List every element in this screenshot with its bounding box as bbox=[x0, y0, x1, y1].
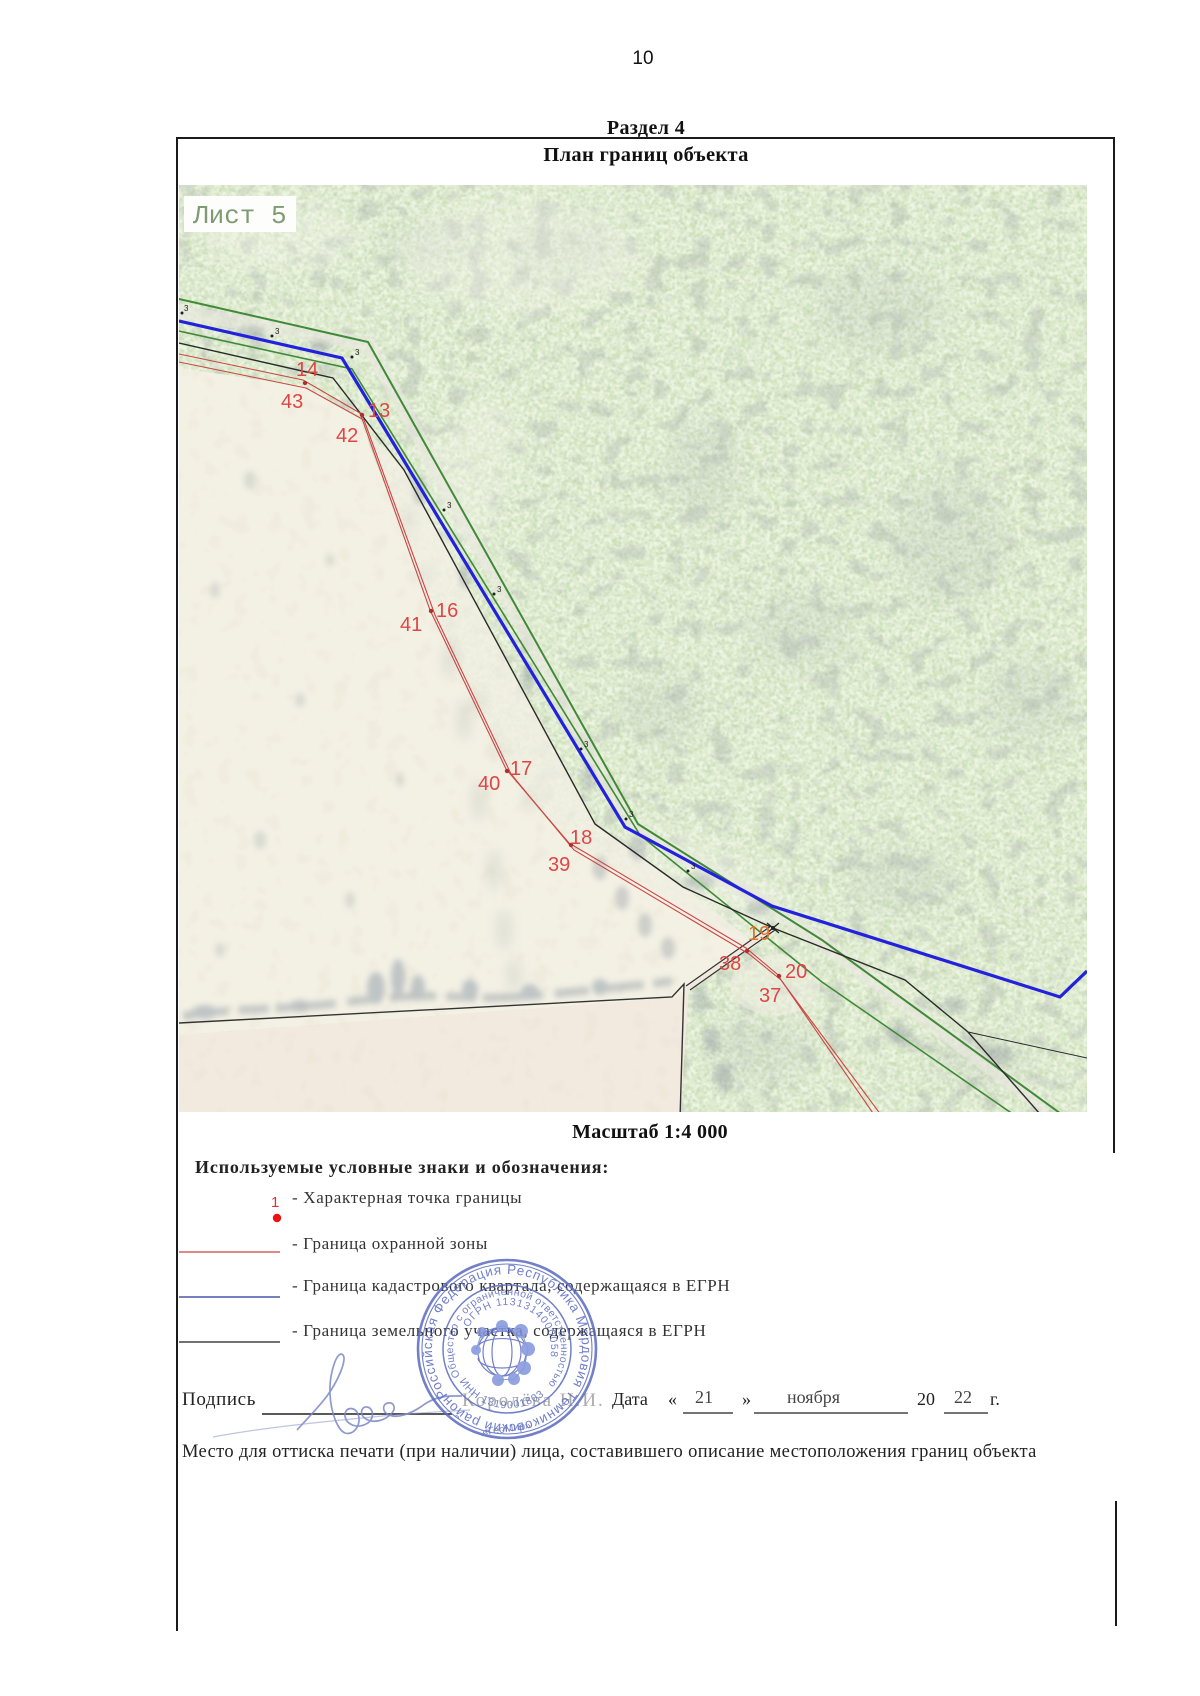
svg-text:ноября: ноября bbox=[787, 1387, 840, 1407]
svg-text:17: 17 bbox=[510, 758, 532, 780]
svg-text:Используемые условные знаки и: Используемые условные знаки и обозначени… bbox=[195, 1157, 609, 1177]
svg-text:20: 20 bbox=[917, 1389, 935, 1409]
svg-text:г.: г. bbox=[990, 1389, 1000, 1409]
svg-text:1: 1 bbox=[271, 1194, 279, 1211]
svg-text:3: 3 bbox=[497, 585, 502, 594]
svg-text:Место для оттиска печати (при: Место для оттиска печати (при наличии) л… bbox=[182, 1442, 1037, 1462]
svg-text:3: 3 bbox=[629, 810, 634, 819]
svg-text:20: 20 bbox=[785, 961, 807, 983]
svg-text:3: 3 bbox=[584, 740, 589, 749]
svg-text:Масштаб 1:4 000: Масштаб 1:4 000 bbox=[572, 1121, 728, 1143]
svg-text:43: 43 bbox=[281, 391, 303, 413]
svg-text:21: 21 bbox=[695, 1387, 713, 1407]
svg-text:- Граница охранной зоны: - Граница охранной зоны bbox=[292, 1234, 488, 1253]
svg-text:16: 16 bbox=[436, 600, 458, 622]
svg-text:«: « bbox=[668, 1389, 677, 1409]
svg-text:Дата: Дата bbox=[612, 1389, 648, 1409]
svg-text:10: 10 bbox=[632, 48, 653, 69]
svg-text:40: 40 bbox=[478, 773, 500, 795]
svg-text:- Характерная точка границы: - Характерная точка границы bbox=[292, 1188, 522, 1207]
svg-text:22: 22 bbox=[954, 1387, 972, 1407]
svg-text:18: 18 bbox=[570, 827, 592, 849]
svg-text:3: 3 bbox=[184, 304, 189, 313]
svg-text:37: 37 bbox=[759, 985, 781, 1007]
svg-text:42: 42 bbox=[336, 425, 358, 447]
svg-text:3: 3 bbox=[275, 327, 280, 336]
svg-text:План границ объекта: План границ объекта bbox=[543, 144, 748, 166]
svg-text:39: 39 bbox=[548, 854, 570, 876]
svg-text:19: 19 bbox=[748, 923, 770, 945]
svg-text:13: 13 bbox=[368, 400, 390, 422]
svg-text:38: 38 bbox=[719, 953, 741, 975]
svg-text:3: 3 bbox=[691, 862, 696, 871]
svg-text:14: 14 bbox=[296, 359, 318, 381]
svg-text:Лист 5: Лист 5 bbox=[192, 201, 287, 231]
svg-text:41: 41 bbox=[400, 614, 422, 636]
svg-text:»: » bbox=[742, 1389, 751, 1409]
svg-text:Подпись: Подпись bbox=[182, 1389, 256, 1410]
svg-text:3: 3 bbox=[447, 501, 452, 510]
svg-text:Раздел 4: Раздел 4 bbox=[607, 117, 685, 139]
svg-text:3: 3 bbox=[355, 348, 360, 357]
